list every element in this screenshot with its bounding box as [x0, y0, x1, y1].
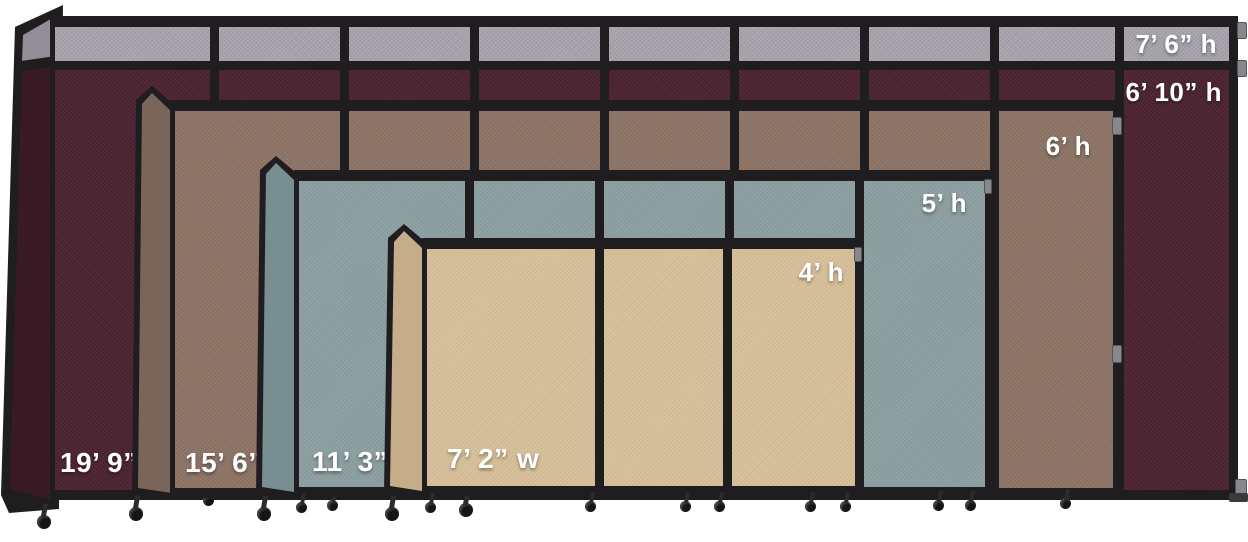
width-label-7ft2: 7’ 2” w: [447, 443, 539, 475]
caster-wheel-icon: [382, 496, 400, 528]
panel-frame-bar: [595, 249, 604, 486]
caster-wheel-icon: [802, 492, 820, 524]
partition-face: 4’ h 7’ 2” w: [422, 238, 864, 496]
caster-wheel-icon: [677, 492, 695, 524]
wall-bracket: [854, 247, 862, 262]
partition-size-comparison-image: 7’ 6” h 6’ 10” h 19’ 9” w 6’ h 15’ 6” w: [0, 0, 1248, 542]
caster-wheel-icon: [582, 492, 600, 524]
caster-wheel-icon: [837, 492, 855, 524]
partition-sand: 4’ h 7’ 2” w: [0, 0, 1248, 542]
panel-frame-bar: [723, 249, 732, 486]
caster-wheel-icon: [711, 492, 729, 524]
caster-wheel-icon: [422, 493, 440, 525]
height-label-4ft: 4’ h: [799, 257, 844, 287]
